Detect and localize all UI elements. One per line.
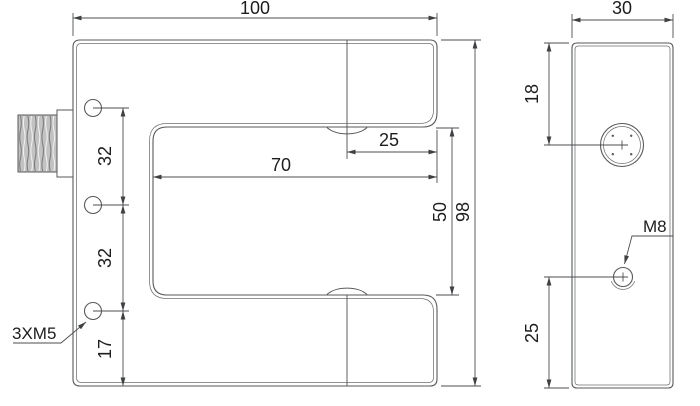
dim-label-100: 100 [240, 0, 270, 18]
dim-overall-width: 100 [73, 0, 437, 36]
side-body-outline [572, 43, 673, 388]
arrowhead [547, 380, 552, 389]
lens-tick-nw [612, 135, 614, 137]
dim-label-32-lower: 32 [95, 248, 115, 268]
arrowhead [547, 137, 552, 146]
cable-connector [18, 110, 73, 177]
side-body-inner-edge [575, 46, 670, 385]
lens-window-bottom [327, 288, 367, 294]
arrowhead [473, 378, 478, 387]
front-view: 100 70 25 50 98 [12, 0, 481, 386]
m8-leader [625, 236, 674, 264]
arrowhead [153, 175, 162, 180]
dim-depth: 30 [572, 0, 673, 38]
arrowhead [450, 287, 455, 296]
arrowhead [429, 150, 438, 155]
arrowhead [121, 205, 126, 214]
arrowhead [547, 43, 552, 52]
dim-hole-pitch-chain: 32 32 17 [93, 108, 129, 386]
dim-label-32-upper: 32 [95, 146, 115, 166]
front-body-outline [73, 40, 437, 386]
m8-label: M8 [643, 217, 667, 236]
dim-label-30: 30 [612, 0, 632, 18]
arrowhead [624, 255, 629, 264]
arrowhead [121, 378, 126, 387]
dim-label-18: 18 [522, 84, 542, 104]
dim-label-50: 50 [430, 202, 450, 222]
arrowhead [121, 197, 126, 206]
dim-label-98: 98 [453, 202, 473, 222]
dim-axis-to-opening: 25 [347, 130, 437, 152]
connector-flange [57, 110, 73, 177]
technical-drawing: 100 70 25 50 98 [0, 0, 700, 406]
dim-label-25-front: 25 [379, 130, 399, 150]
arrowhead [547, 277, 552, 286]
arrowhead [429, 175, 438, 180]
front-body-inner-edge [77, 44, 434, 383]
side-view: 30 18 25 M8 [522, 0, 673, 388]
drawing-canvas: 100 70 25 50 98 [0, 0, 700, 406]
arrowhead [73, 16, 82, 21]
lens-tick-sw [612, 153, 614, 155]
dim-label-25-side: 25 [522, 323, 542, 343]
arrowhead [121, 303, 126, 312]
arrowhead [121, 108, 126, 117]
dim-label-70: 70 [271, 155, 291, 175]
dimension-arrowheads [73, 16, 673, 388]
dim-label-17: 17 [95, 339, 115, 359]
arrowhead [572, 18, 581, 23]
m8-hole [611, 268, 634, 290]
lens-tick-se [630, 153, 632, 155]
mount-holes-label: 3XM5 [12, 324, 56, 343]
arrowhead [347, 150, 356, 155]
mount-holes-callout: 3XM5 [12, 322, 86, 343]
arrowhead [450, 128, 455, 137]
arrowhead [473, 40, 478, 49]
arrowhead [121, 311, 126, 320]
m8-callout: M8 [625, 217, 674, 264]
lens-tick-ne [630, 135, 632, 137]
arrowhead [665, 18, 674, 23]
arrowhead [429, 16, 438, 21]
